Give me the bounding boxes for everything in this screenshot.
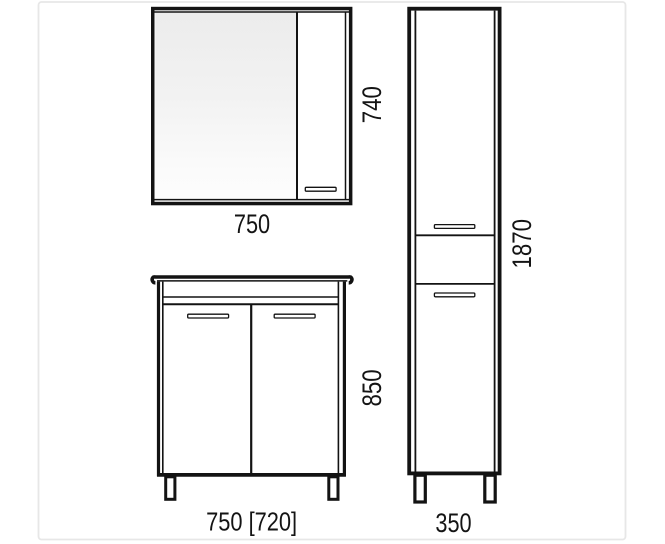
svg-text:750 [720]: 750 [720]: [206, 508, 297, 537]
svg-text:1870: 1870: [508, 219, 537, 269]
svg-text:350: 350: [435, 509, 471, 539]
svg-text:740: 740: [358, 86, 387, 123]
svg-text:750: 750: [234, 210, 270, 240]
svg-text:850: 850: [358, 369, 387, 406]
